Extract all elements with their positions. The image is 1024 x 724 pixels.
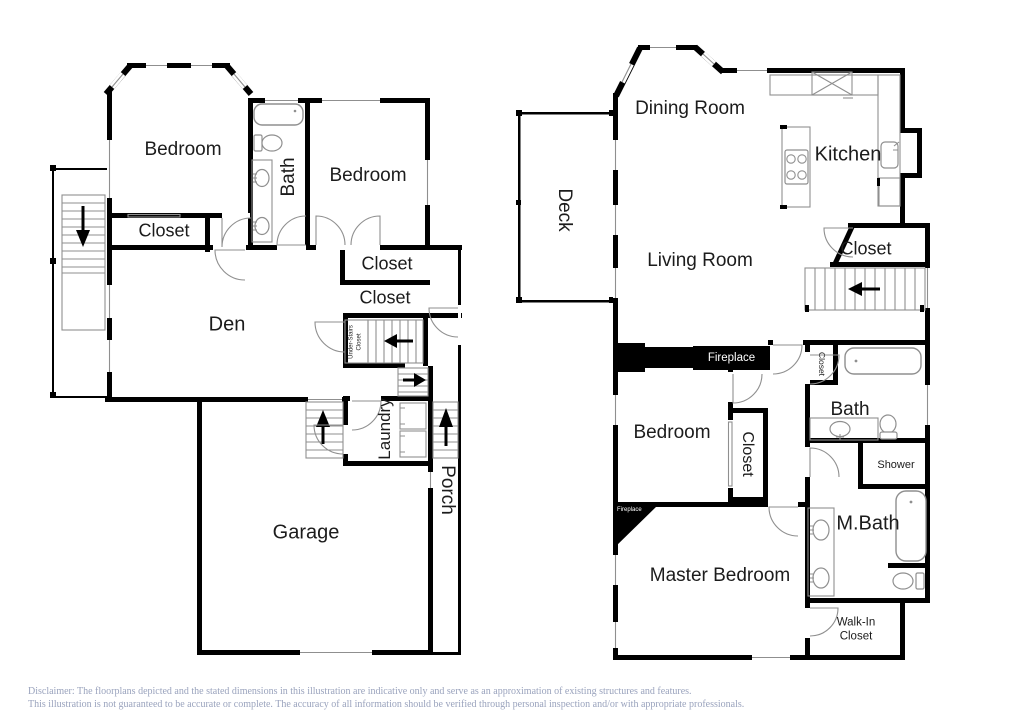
cooktop-hood-icon	[812, 72, 853, 98]
sink-vanity-icon	[810, 418, 878, 440]
room-label-shower: Shower	[877, 459, 914, 471]
master-bathtub-icon	[896, 491, 926, 561]
kitchen-fixtures	[770, 72, 900, 209]
island-stove-icon	[780, 125, 810, 209]
second-floor-stairs	[805, 268, 925, 312]
disclaimer-line-2: This illustration is not guaranteed to b…	[28, 698, 744, 711]
room-label-closet-stairs: Closet	[840, 239, 891, 260]
room-label-walk-in-closet: Walk-In Closet	[837, 616, 876, 645]
room-label-bedroom-2: Bedroom	[329, 165, 406, 187]
room-label-closet-bath: Closet	[817, 352, 827, 376]
disclaimer-text: Disclaimer: The floorplans depicted and …	[28, 685, 744, 711]
floorplan-canvas: Bedroom Bath Bedroom Closet Den Closet C…	[0, 0, 1024, 724]
room-label-kitchen: Kitchen	[815, 144, 882, 167]
room-label-under-stairs-closet: Under-Stairs Closet	[349, 325, 364, 359]
first-floor-plan	[50, 63, 462, 655]
master-toilet-icon	[893, 573, 924, 589]
room-label-master-bedroom: Master Bedroom	[650, 565, 790, 587]
room-label-master-bath: M.Bath	[836, 513, 899, 536]
room-label-living-room: Living Room	[647, 250, 753, 272]
stairs-left-arrow-icon	[384, 334, 413, 348]
room-label-bedroom-1: Bedroom	[144, 139, 221, 161]
room-label-closet-upper: Closet	[361, 254, 412, 275]
exterior-stairs-structure	[50, 165, 107, 398]
room-label-bath: Bath	[278, 157, 300, 196]
toilet-icon	[254, 135, 282, 151]
room-label-closet-lower: Closet	[359, 288, 410, 309]
porch-stairs-up-arrow-icon	[439, 408, 453, 446]
room-label-deck: Deck	[553, 188, 575, 231]
washer-dryer-icon	[400, 403, 426, 457]
bathtub-icon	[845, 348, 921, 374]
bathtub-icon	[254, 104, 303, 125]
room-label-closet-bedroom: Closet	[138, 221, 189, 242]
room-label-porch: Porch	[436, 465, 458, 515]
room-label-bath-2f: Bath	[830, 399, 869, 421]
room-label-bedroom: Bedroom	[633, 422, 710, 444]
fireplace-living: Fireplace	[693, 346, 770, 370]
disclaimer-line-1: Disclaimer: The floorplans depicted and …	[28, 685, 744, 698]
room-label-laundry: Laundry	[375, 398, 395, 459]
master-double-sink-vanity-icon	[808, 508, 834, 596]
room-label-garage: Garage	[273, 522, 340, 545]
kitchen-sink-icon	[881, 142, 899, 168]
second-floor-bath-fixtures	[808, 348, 926, 596]
stairs-right-arrow-icon	[403, 373, 426, 387]
room-label-den: Den	[209, 314, 246, 337]
double-sink-vanity-icon	[252, 160, 272, 242]
room-label-dining-room: Dining Room	[635, 98, 745, 120]
room-label-closet-bedroom-2f: Closet	[738, 431, 756, 476]
garage-stairs-up-arrow-icon	[316, 410, 330, 444]
toilet-icon	[880, 415, 897, 439]
